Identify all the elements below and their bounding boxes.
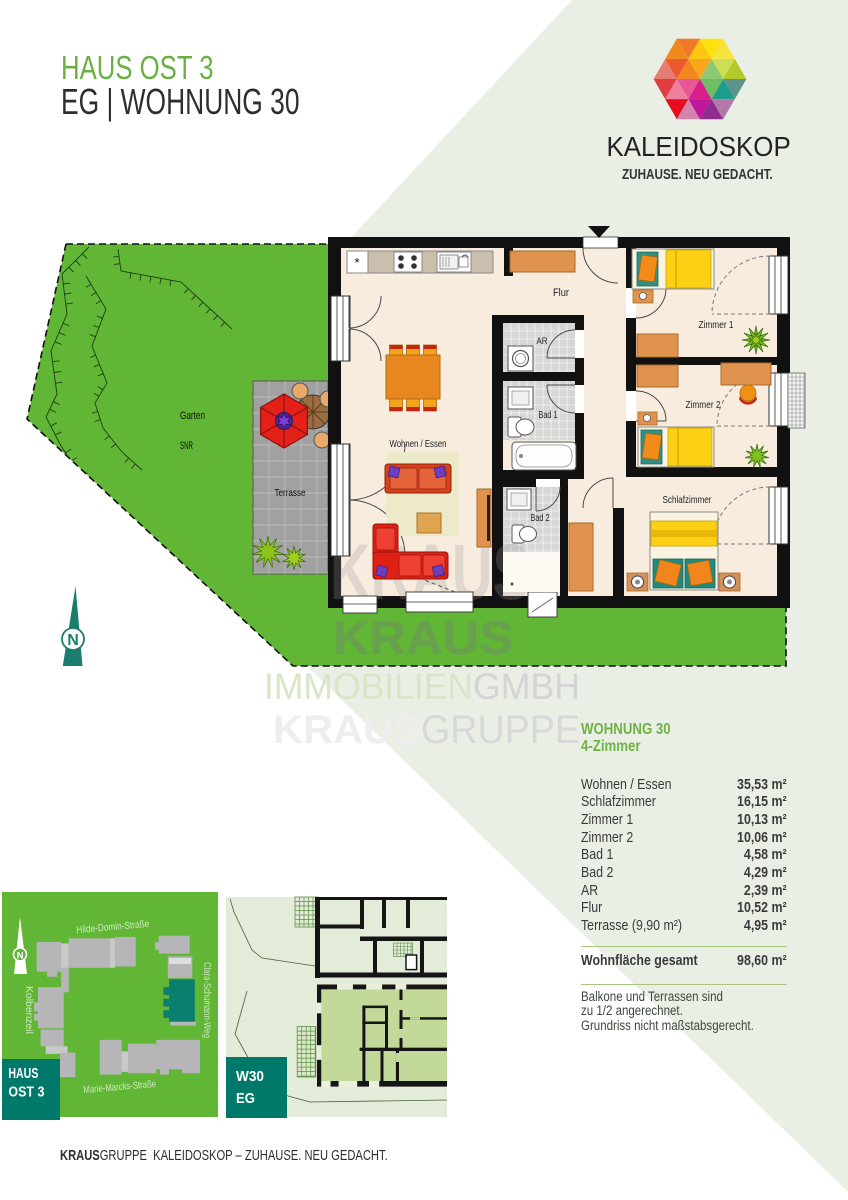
svg-text:Flur: Flur	[553, 287, 569, 299]
svg-text:SNR: SNR	[180, 440, 193, 452]
svg-text:Kolbenzeil: Kolbenzeil	[23, 986, 34, 1034]
svg-text:HAUS: HAUS	[8, 1066, 38, 1082]
svg-text:Clara-Schumann-Weg: Clara-Schumann-Weg	[201, 962, 212, 1038]
svg-text:W30: W30	[236, 1069, 264, 1085]
svg-text:Bad 1: Bad 1	[539, 410, 558, 421]
svg-text:Zimmer 1: Zimmer 1	[699, 319, 734, 331]
svg-text:Garten: Garten	[180, 410, 205, 422]
svg-text:Bad 2: Bad 2	[531, 513, 550, 524]
svg-text:Zimmer 2: Zimmer 2	[686, 399, 721, 411]
svg-text:Wohnen / Essen: Wohnen / Essen	[390, 438, 447, 450]
svg-text:N: N	[67, 632, 79, 649]
svg-text:AR: AR	[537, 336, 548, 347]
svg-text:GMBH: GMBH	[473, 666, 580, 707]
svg-text:KRAUS: KRAUS	[333, 611, 513, 664]
svg-text:KRAUS: KRAUS	[273, 708, 421, 752]
svg-text:N: N	[17, 951, 24, 962]
svg-text:Terrasse: Terrasse	[275, 487, 306, 499]
svg-text:OST 3: OST 3	[8, 1085, 44, 1101]
svg-text:EG: EG	[236, 1091, 255, 1107]
svg-text:Schlafzimmer: Schlafzimmer	[663, 494, 712, 506]
svg-text:*: *	[354, 255, 359, 270]
svg-text:GRUPPE: GRUPPE	[421, 708, 580, 752]
svg-text:IMMOBILIEN: IMMOBILIEN	[264, 666, 473, 707]
